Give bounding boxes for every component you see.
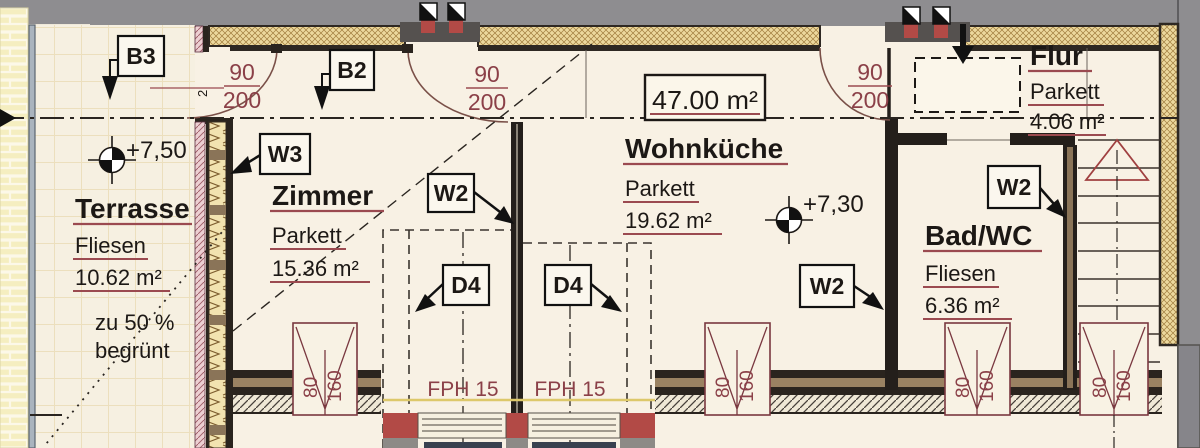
door-width: 90 [474, 61, 500, 87]
tag-w2-label: W2 [810, 273, 845, 299]
floor-plan: 80 160 80 160 80 160 80 160 [0, 0, 1200, 448]
north-wall [195, 22, 1165, 52]
tag-d4-label: D4 [553, 272, 583, 298]
window-width: 80 [1090, 377, 1111, 398]
tag-b2-label: B2 [337, 57, 366, 83]
terrasse-note-1: zu 50 % [95, 310, 175, 335]
zimmer-area-label: 15.36 m² [272, 256, 359, 281]
zimmer-wohnkueche-wall [511, 122, 523, 418]
tag-w2-label: W2 [997, 174, 1032, 200]
east-wall [1160, 24, 1178, 345]
south-wall [233, 370, 1162, 413]
bad-area-label: 6.36 m² [925, 293, 1000, 318]
zimmer-room-label: Zimmer [272, 180, 373, 211]
section-marker-icon [448, 3, 465, 33]
window-width: 80 [953, 377, 974, 398]
tag-w3-label: W3 [268, 141, 303, 167]
door-width: 90 [857, 59, 883, 85]
total-area-value: 47.00 m² [652, 85, 758, 115]
bad-stairs-wall [1063, 145, 1077, 390]
window-3: 80 160 [945, 323, 1010, 415]
section-marker-icon [933, 7, 950, 38]
neighbour-brick-wall [0, 8, 28, 448]
window-1: 80 160 [293, 323, 357, 415]
door-width: 90 [229, 59, 255, 85]
level-wohnkueche: +7,30 [803, 191, 864, 218]
bad-floor-label: Fliesen [925, 261, 996, 286]
flur-ceiling-opening [915, 58, 1020, 112]
floor-plan-drawing: 80 160 80 160 80 160 80 160 [0, 0, 1200, 448]
terrasse-room-label: Terrasse [75, 193, 190, 224]
section-marker-icon [903, 7, 920, 38]
window-height: 160 [1114, 370, 1135, 402]
total-area-box: 47.00 m² [645, 75, 765, 120]
terrasse-edge-line [29, 25, 35, 448]
fph-label-2: FPH 15 [534, 378, 605, 401]
door-height: 200 [223, 87, 261, 113]
window-height: 160 [325, 370, 346, 402]
door-dim-note: 2 [195, 90, 210, 97]
tag-b3-label: B3 [126, 43, 155, 69]
door-2-hinge [402, 44, 413, 53]
tag-w2-label: W2 [434, 180, 469, 206]
window-width: 80 [713, 377, 734, 398]
bad-room-label: Bad/WC [925, 220, 1032, 251]
terrasse-area-label: 10.62 m² [75, 265, 162, 290]
wohnkueche-area-label: 19.62 m² [625, 208, 712, 233]
terrasse-zimmer-wall [195, 118, 233, 448]
window-2: 80 160 [705, 323, 770, 415]
window-width: 80 [301, 377, 322, 398]
door-1-hinge [271, 44, 282, 53]
wohnkueche-floor-label: Parkett [625, 176, 695, 201]
section-marker-icon [420, 3, 437, 33]
door-height: 200 [851, 87, 889, 113]
wohnkueche-room-label: Wohnküche [625, 133, 783, 164]
flur-floor-label: Parkett [1030, 79, 1100, 104]
flur-area-label: 4.06 m² [1030, 109, 1105, 134]
fph-label-1: FPH 15 [427, 378, 498, 401]
terrasse-floor-label: Fliesen [75, 233, 146, 258]
flur-room-label: Flur [1030, 40, 1083, 71]
window-height: 160 [737, 370, 758, 402]
terrasse-note-2: begrünt [95, 338, 170, 363]
tag-d4-label: D4 [451, 272, 481, 298]
zimmer-floor-label: Parkett [272, 223, 342, 248]
level-terrasse: +7,50 [126, 137, 187, 164]
door-height: 200 [468, 89, 506, 115]
exterior-top-band-2 [90, 0, 1200, 26]
exterior-corner-block [1178, 345, 1200, 448]
window-height: 160 [977, 370, 998, 402]
